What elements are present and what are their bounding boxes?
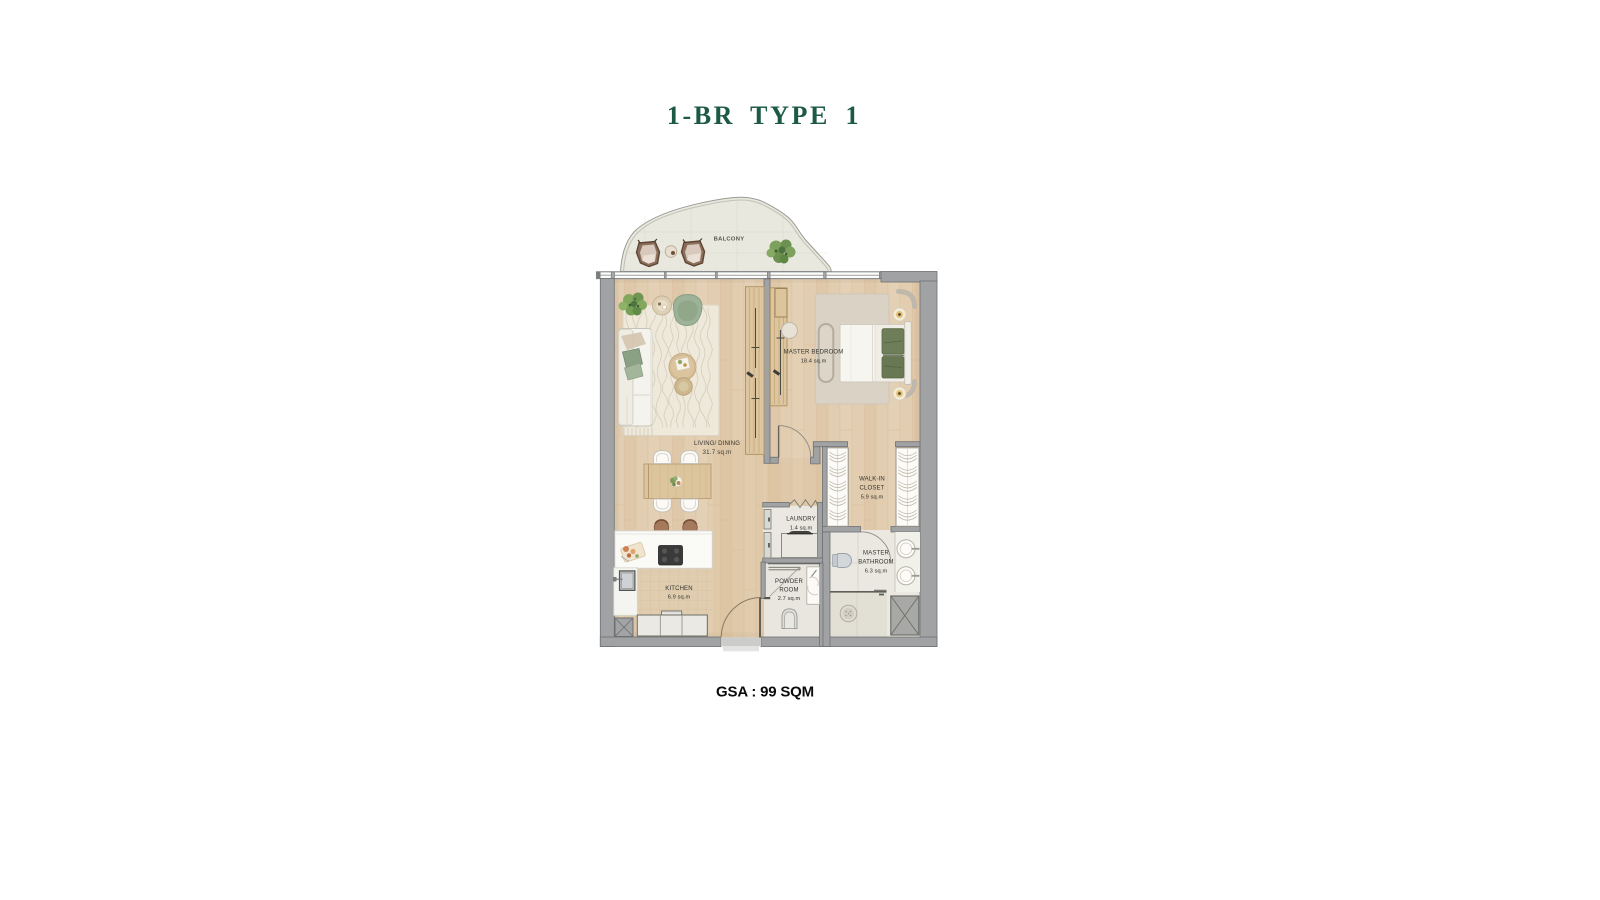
svg-text:LIVING/ DINING: LIVING/ DINING [694, 441, 740, 447]
svg-text:POWDER: POWDER [775, 579, 803, 585]
svg-text:GSA : 99 SQM: GSA : 99 SQM [716, 684, 814, 701]
svg-text:CLOSET: CLOSET [860, 486, 885, 492]
svg-text:1-BR TYPE 1: 1-BR TYPE 1 [667, 101, 861, 130]
svg-text:MASTER: MASTER [863, 551, 889, 557]
svg-text:BATHROOM: BATHROOM [858, 560, 893, 566]
svg-text:LAUNDRY: LAUNDRY [786, 517, 816, 523]
svg-text:18.4 sq.m: 18.4 sq.m [801, 359, 827, 365]
svg-text:6.3 sq.m: 6.3 sq.m [865, 569, 888, 575]
svg-text:1.4 sq.m: 1.4 sq.m [790, 526, 813, 532]
svg-text:KITCHEN: KITCHEN [665, 586, 692, 592]
svg-text:5.9 sq.m: 5.9 sq.m [861, 495, 884, 501]
svg-text:BALCONY: BALCONY [714, 237, 745, 243]
svg-text:MASTER BEDROOM: MASTER BEDROOM [784, 350, 844, 356]
svg-text:WALK-IN: WALK-IN [859, 477, 885, 483]
svg-text:2.7 sq.m: 2.7 sq.m [778, 596, 801, 602]
svg-text:6.9 sq.m: 6.9 sq.m [668, 595, 691, 601]
svg-text:31.7 sq.m: 31.7 sq.m [703, 449, 732, 456]
svg-text:ROOM: ROOM [779, 588, 798, 594]
